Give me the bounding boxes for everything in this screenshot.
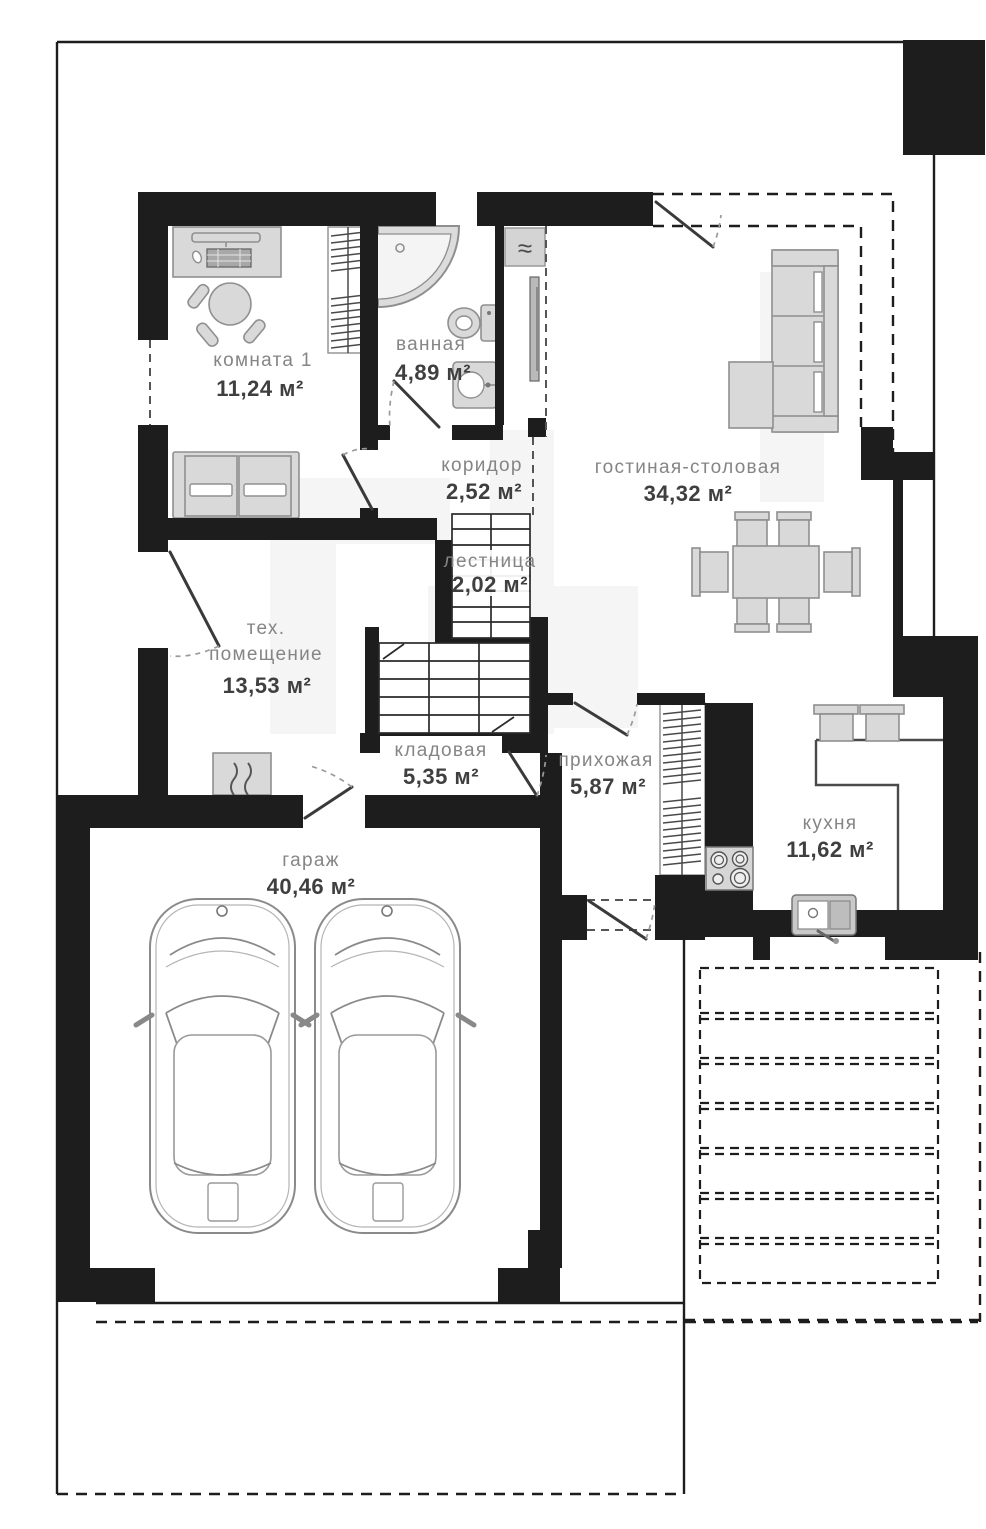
car-1	[136, 899, 309, 1233]
boiler	[213, 753, 271, 795]
door-bathroom	[390, 381, 440, 427]
car-2	[301, 899, 474, 1233]
label-kitchen: кухня 11,62 м²	[786, 813, 874, 862]
label-corridor: коридор 2,52 м²	[441, 455, 523, 504]
floor-plan-drawing: ≈	[0, 0, 986, 1529]
svg-text:11,62 м²: 11,62 м²	[786, 837, 874, 862]
svg-text:кухня: кухня	[803, 813, 858, 834]
svg-text:гараж: гараж	[282, 850, 339, 871]
label-bathroom: ванная 4,89 м²	[395, 334, 471, 385]
label-hallway: прихожая 5,87 м²	[558, 750, 653, 799]
bar-stools	[814, 705, 904, 741]
radiator: ≈	[505, 228, 545, 266]
label-storage: кладовая 5,35 м²	[395, 740, 488, 789]
svg-text:4,89 м²: 4,89 м²	[395, 360, 471, 385]
svg-text:коридор: коридор	[441, 455, 523, 476]
label-living-dining: гостиная-столовая 34,32 м²	[595, 457, 781, 506]
label-stairs: лестница 2,02 м²	[444, 551, 537, 597]
door-tech-exterior	[170, 552, 219, 656]
radiator-icon: ≈	[518, 233, 532, 263]
sofa-room1	[173, 452, 299, 518]
svg-text:11,24 м²: 11,24 м²	[216, 376, 304, 401]
svg-text:5,35 м²: 5,35 м²	[403, 764, 479, 789]
svg-text:прихожая: прихожая	[558, 750, 653, 771]
sofa-living	[729, 250, 838, 432]
terrace-steps	[700, 968, 938, 1283]
svg-text:2,52 м²: 2,52 м²	[446, 479, 522, 504]
door-entrance	[589, 901, 655, 939]
svg-text:комната 1: комната 1	[213, 350, 312, 371]
door-terrace-living	[656, 202, 721, 247]
svg-text:гостиная-столовая: гостиная-столовая	[595, 457, 781, 478]
office-chair	[186, 283, 267, 348]
svg-text:ванная: ванная	[396, 334, 466, 355]
label-room1: комната 1 11,24 м²	[213, 350, 312, 401]
tv-panel	[530, 277, 539, 381]
desk	[173, 227, 281, 277]
svg-text:помещение: помещение	[209, 644, 323, 665]
hallway-wardrobe	[660, 703, 705, 875]
svg-text:5,87 м²: 5,87 м²	[570, 774, 646, 799]
svg-text:40,46 м²: 40,46 м²	[267, 874, 356, 899]
floor-plan-page: ≈	[0, 0, 986, 1529]
svg-text:лестница: лестница	[444, 551, 537, 572]
stove	[706, 847, 753, 890]
label-garage: гараж 40,46 м²	[267, 850, 356, 899]
svg-text:кладовая: кладовая	[395, 740, 488, 761]
door-tech-garage	[305, 766, 352, 818]
corner-shower	[378, 226, 459, 307]
svg-text:13,53 м²: 13,53 м²	[223, 673, 312, 698]
svg-text:34,32 м²: 34,32 м²	[644, 481, 733, 506]
svg-text:2,02 м²: 2,02 м²	[452, 572, 528, 597]
svg-text:тех.: тех.	[247, 618, 286, 639]
dining-table-set	[692, 512, 860, 632]
